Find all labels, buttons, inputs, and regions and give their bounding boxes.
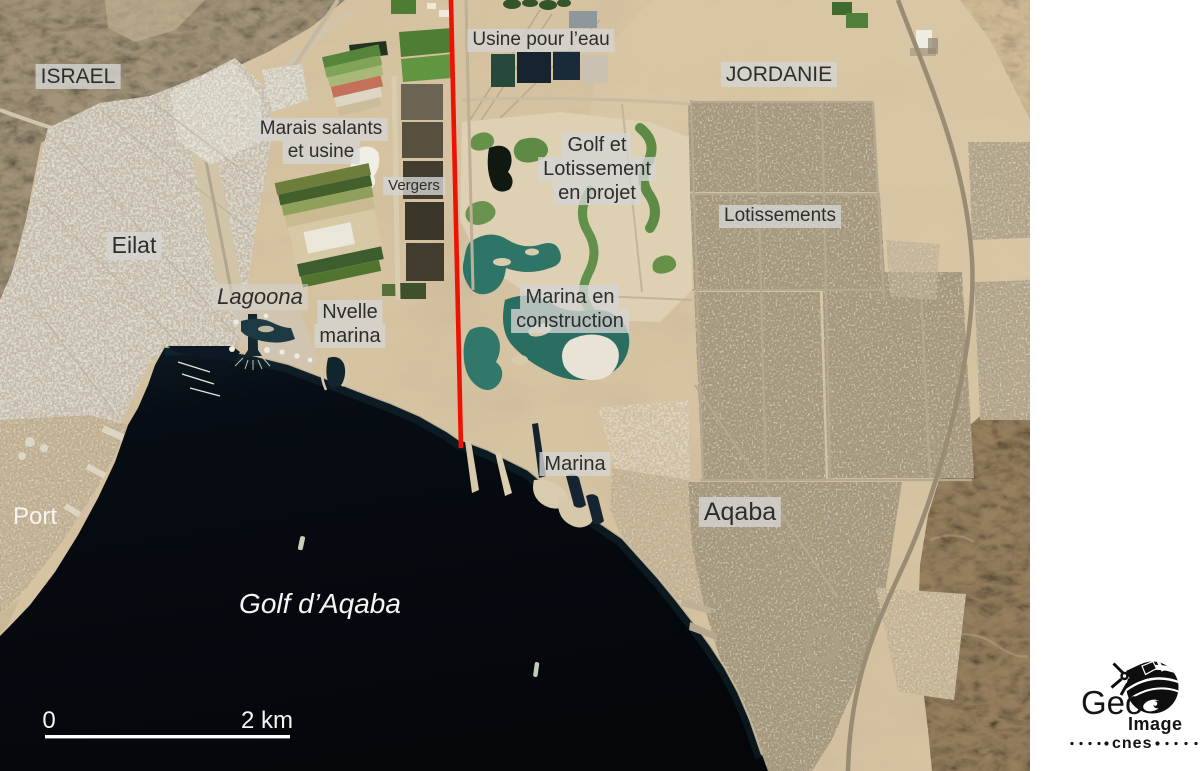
svg-text:Image: Image: [1128, 714, 1183, 734]
svg-text:cnes: cnes: [1112, 735, 1152, 752]
